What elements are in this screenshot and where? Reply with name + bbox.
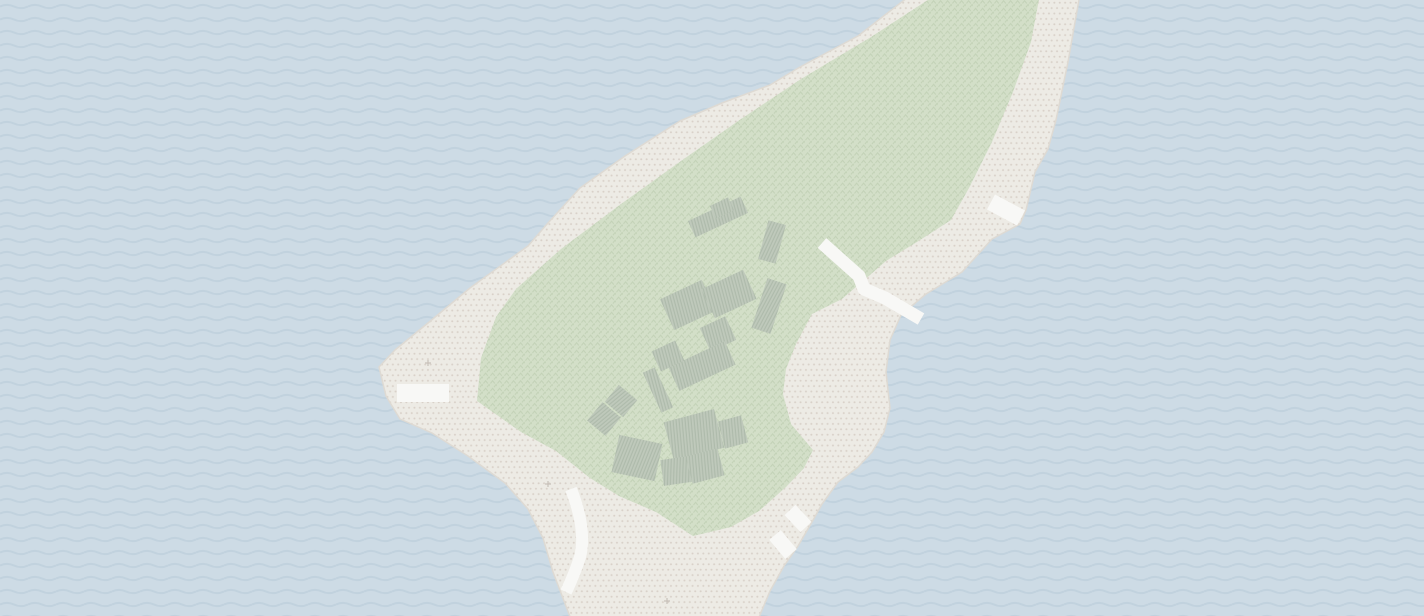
map-viewport	[0, 0, 1424, 616]
map-canvas[interactable]	[0, 0, 1424, 616]
